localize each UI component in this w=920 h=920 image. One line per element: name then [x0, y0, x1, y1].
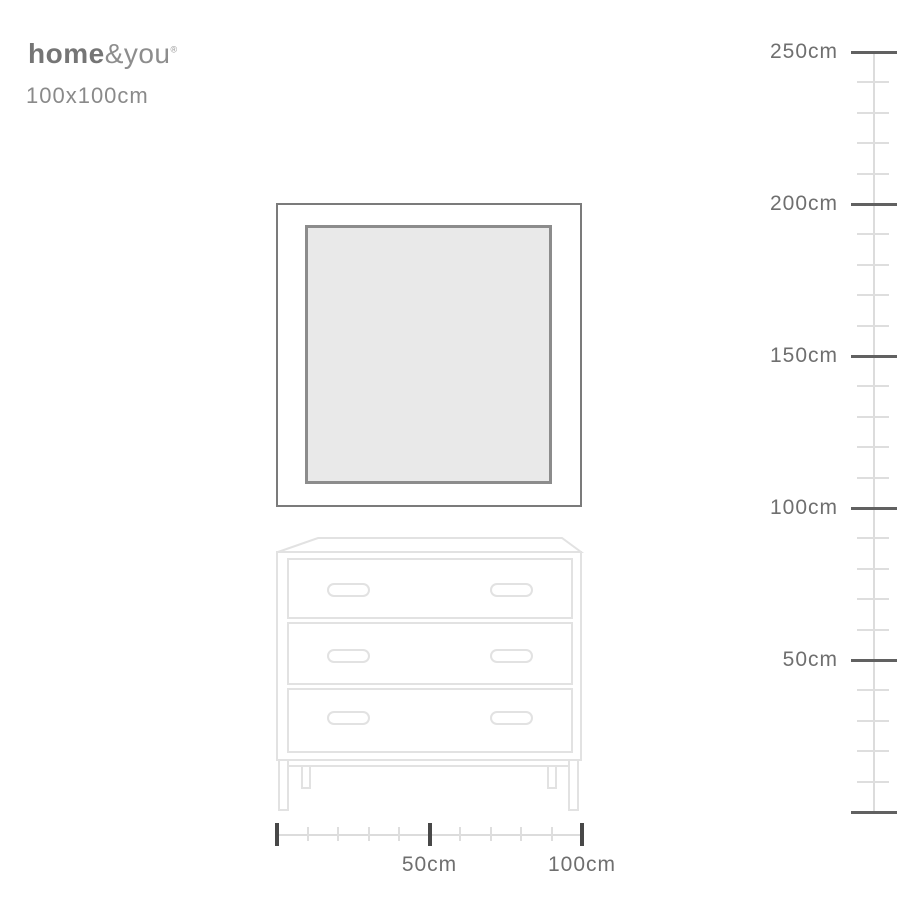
ruler-label: 50cm [738, 647, 838, 673]
ruler-label: 250cm [738, 39, 838, 65]
minor-tick [857, 629, 889, 631]
major-tick [851, 659, 897, 662]
ruler-line [873, 52, 875, 814]
drawer-3-handle-right [491, 712, 532, 724]
minor-tick [857, 477, 889, 479]
minor-tick [368, 827, 370, 841]
registered-trademark-icon: ® [171, 45, 178, 55]
minor-tick [520, 827, 522, 841]
minor-tick [857, 446, 889, 448]
minor-tick [857, 233, 889, 235]
dresser-drawer-1 [288, 559, 572, 618]
dresser-leg-back-right [548, 766, 556, 788]
minor-tick [857, 720, 889, 722]
minor-tick [857, 537, 889, 539]
minor-tick [857, 781, 889, 783]
major-tick [851, 811, 897, 814]
minor-tick [857, 385, 889, 387]
product-dimension-diagram: home&you® 100x100cm 250cm200cm150cm100cm… [0, 0, 920, 920]
ruler-label: 100cm [522, 852, 642, 878]
drawer-2-handle-left [328, 650, 369, 662]
drawer-1-handle-right [491, 584, 532, 596]
ruler-label: 50cm [370, 852, 490, 878]
major-tick [851, 355, 897, 358]
minor-tick [337, 827, 339, 841]
dresser-leg-left [279, 760, 288, 810]
minor-tick [398, 827, 400, 841]
minor-tick [857, 112, 889, 114]
major-tick [851, 507, 897, 510]
major-tick [428, 823, 432, 846]
minor-tick [857, 142, 889, 144]
product-size-label: 100x100cm [26, 83, 149, 109]
dresser-leg-back-left [302, 766, 310, 788]
drawer-2-handle-right [491, 650, 532, 662]
dresser-drawer-2 [288, 623, 572, 684]
minor-tick [857, 416, 889, 418]
minor-tick [857, 598, 889, 600]
drawer-1-handle-left [328, 584, 369, 596]
brand-logo-light: &you [105, 38, 171, 69]
ruler-label: 200cm [738, 191, 838, 217]
minor-tick [857, 173, 889, 175]
minor-tick [857, 568, 889, 570]
minor-tick [307, 827, 309, 841]
ruler-label: 150cm [738, 343, 838, 369]
minor-tick [459, 827, 461, 841]
major-tick [275, 823, 279, 846]
major-tick [580, 823, 584, 846]
brand-logo-bold: home [28, 38, 105, 69]
dresser-drawer-3 [288, 689, 572, 752]
minor-tick [857, 294, 889, 296]
drawer-3-handle-left [328, 712, 369, 724]
ruler-label: 100cm [738, 495, 838, 521]
minor-tick [857, 689, 889, 691]
minor-tick [857, 264, 889, 266]
mirror-glass [305, 225, 552, 484]
minor-tick [857, 81, 889, 83]
minor-tick [551, 827, 553, 841]
dresser-body [277, 552, 581, 760]
major-tick [851, 51, 897, 54]
major-tick [851, 203, 897, 206]
minor-tick [857, 750, 889, 752]
mirror-frame [276, 203, 582, 507]
minor-tick [490, 827, 492, 841]
dresser-leg-right [569, 760, 578, 810]
dresser-top-surface [278, 538, 581, 552]
brand-logo: home&you® [28, 40, 178, 68]
minor-tick [857, 325, 889, 327]
